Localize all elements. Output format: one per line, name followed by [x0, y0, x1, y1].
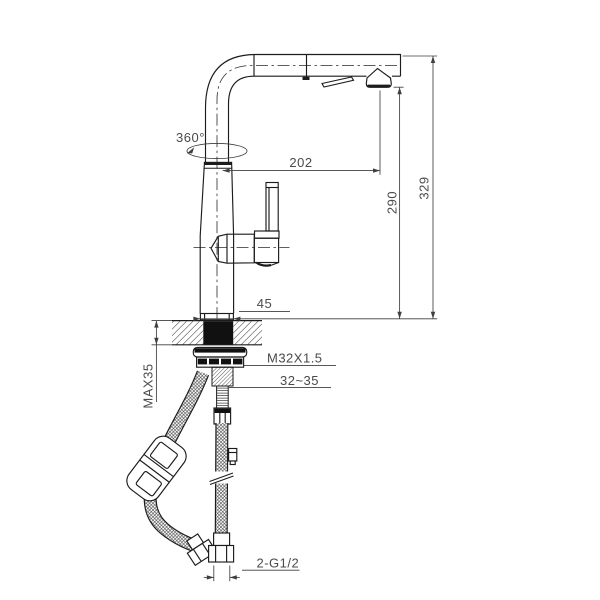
spray-head — [366, 69, 391, 88]
label-total-height-329: 329 — [417, 176, 432, 199]
faucet-spout — [206, 55, 401, 165]
hose-break-symbol — [209, 472, 235, 485]
threaded-shank — [212, 367, 233, 386]
handle-base — [255, 231, 280, 238]
hose-clip — [229, 449, 237, 465]
label-shank-thread: M32X1.5 — [267, 351, 323, 366]
label-base-width-45: 45 — [257, 296, 272, 311]
rotation-arrow-icon — [187, 147, 194, 153]
hose-nut-right — [209, 533, 234, 562]
faucet-technical-drawing: 360° 202 290 329 45 M32X1.5 32~35 MAX35 … — [0, 0, 600, 600]
label-rotation-360: 360° — [176, 130, 205, 145]
spray-head-lever — [322, 77, 354, 87]
faucet-shank — [203, 321, 233, 345]
hose-counterweight — [122, 432, 190, 505]
dimension-labels: 360° 202 290 329 45 M32X1.5 32~35 MAX35 … — [141, 130, 432, 571]
valve-assembly — [211, 183, 279, 266]
label-spout-height-290: 290 — [385, 191, 400, 214]
riser-tube — [217, 386, 229, 408]
countertop — [172, 321, 262, 345]
label-hole-diameter: 32~35 — [280, 373, 319, 388]
drawing-page: 360° 202 290 329 45 M32X1.5 32~35 MAX35 … — [0, 0, 600, 600]
spray-release-tab — [303, 77, 310, 80]
faucet-handle — [266, 183, 278, 232]
label-max-counter-thickness: MAX35 — [141, 363, 156, 408]
label-spout-reach-202: 202 — [289, 155, 312, 170]
label-hose-thread: 2-G1/2 — [257, 556, 300, 571]
centerlines — [194, 66, 398, 320]
